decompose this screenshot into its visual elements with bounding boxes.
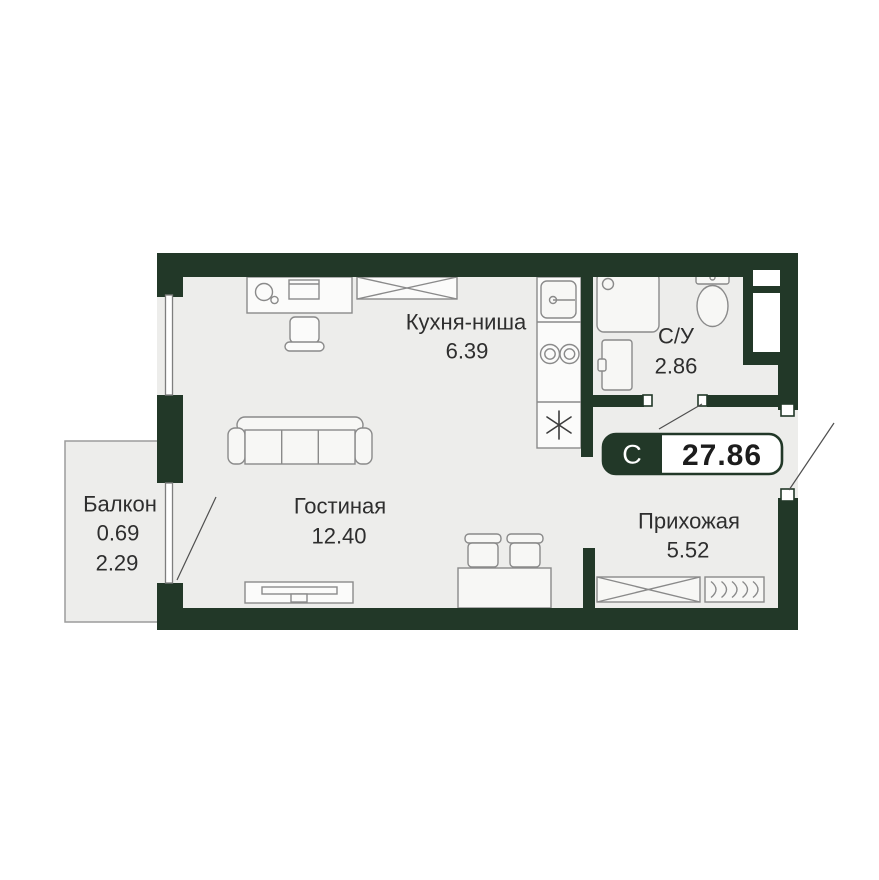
room-label-balcony: Балкон (83, 492, 157, 517)
room-label-kitchen: Кухня-ниша (406, 310, 527, 335)
wall-bottom (157, 608, 798, 630)
wall-right-lower (778, 498, 798, 630)
room-area-kitchen: 6.39 (446, 339, 489, 364)
wall-left-pier (157, 395, 183, 483)
stool-icon (465, 534, 501, 567)
room-area-balcony-full: 2.29 (96, 551, 139, 576)
bath-door-jamb-right (698, 395, 707, 406)
shaft-wall-bottom (743, 352, 780, 365)
entry-door-hinge-top (781, 404, 794, 416)
shaft-wall-left (743, 270, 753, 365)
washing-machine-icon (598, 340, 632, 390)
kitchen-counter-icon (537, 277, 581, 448)
window (166, 295, 173, 395)
room-area-bathroom: 2.86 (655, 354, 698, 379)
tv-console-icon (245, 582, 353, 603)
floor-plan-drawing: С 27.86 Кухня-ниша 6.39 С/У 2.86 Гостина… (0, 0, 879, 880)
badge-total-area: 27.86 (682, 439, 762, 472)
badge-letter: С (622, 440, 642, 470)
wall-bathroom-right (707, 395, 778, 407)
room-label-hallway: Прихожая (638, 509, 740, 534)
dining-table-icon (458, 568, 551, 608)
wardrobe-hallway-icon (597, 577, 700, 602)
wall-right-upper (778, 253, 798, 410)
room-area-balcony-reduced: 0.69 (97, 521, 140, 546)
entry-door-hinge-bottom (781, 489, 794, 501)
sink-icon (541, 281, 576, 318)
wall-top (157, 253, 798, 277)
room-area-hallway: 5.52 (667, 538, 710, 563)
balcony-door (166, 483, 173, 583)
total-area-badge: С 27.86 (603, 434, 782, 474)
wall-hallway-stub (583, 548, 595, 608)
wall-kitchen-divider (581, 275, 593, 457)
ventilation-shaft-small (753, 270, 780, 286)
sofa-icon (228, 417, 372, 464)
shoe-rack-icon (705, 577, 764, 602)
wall-left-upper (157, 253, 183, 297)
room-area-living: 12.40 (311, 524, 366, 549)
ventilation-shaft-large (753, 293, 780, 352)
toilet-icon (696, 271, 729, 327)
stool-icon (507, 534, 543, 567)
office-chair-icon (285, 317, 324, 351)
shaft-wall-divider (753, 286, 780, 293)
shower-tray-icon (597, 272, 659, 332)
wall-bathroom-left (581, 395, 644, 407)
wardrobe-kitchen-icon (357, 277, 457, 299)
room-label-bathroom: С/У (658, 324, 695, 349)
room-label-living: Гостиная (294, 494, 386, 519)
desk-icon (247, 277, 352, 313)
bath-door-jamb-left (643, 395, 652, 406)
floor-plan-page: С 27.86 Кухня-ниша 6.39 С/У 2.86 Гостина… (0, 0, 879, 880)
